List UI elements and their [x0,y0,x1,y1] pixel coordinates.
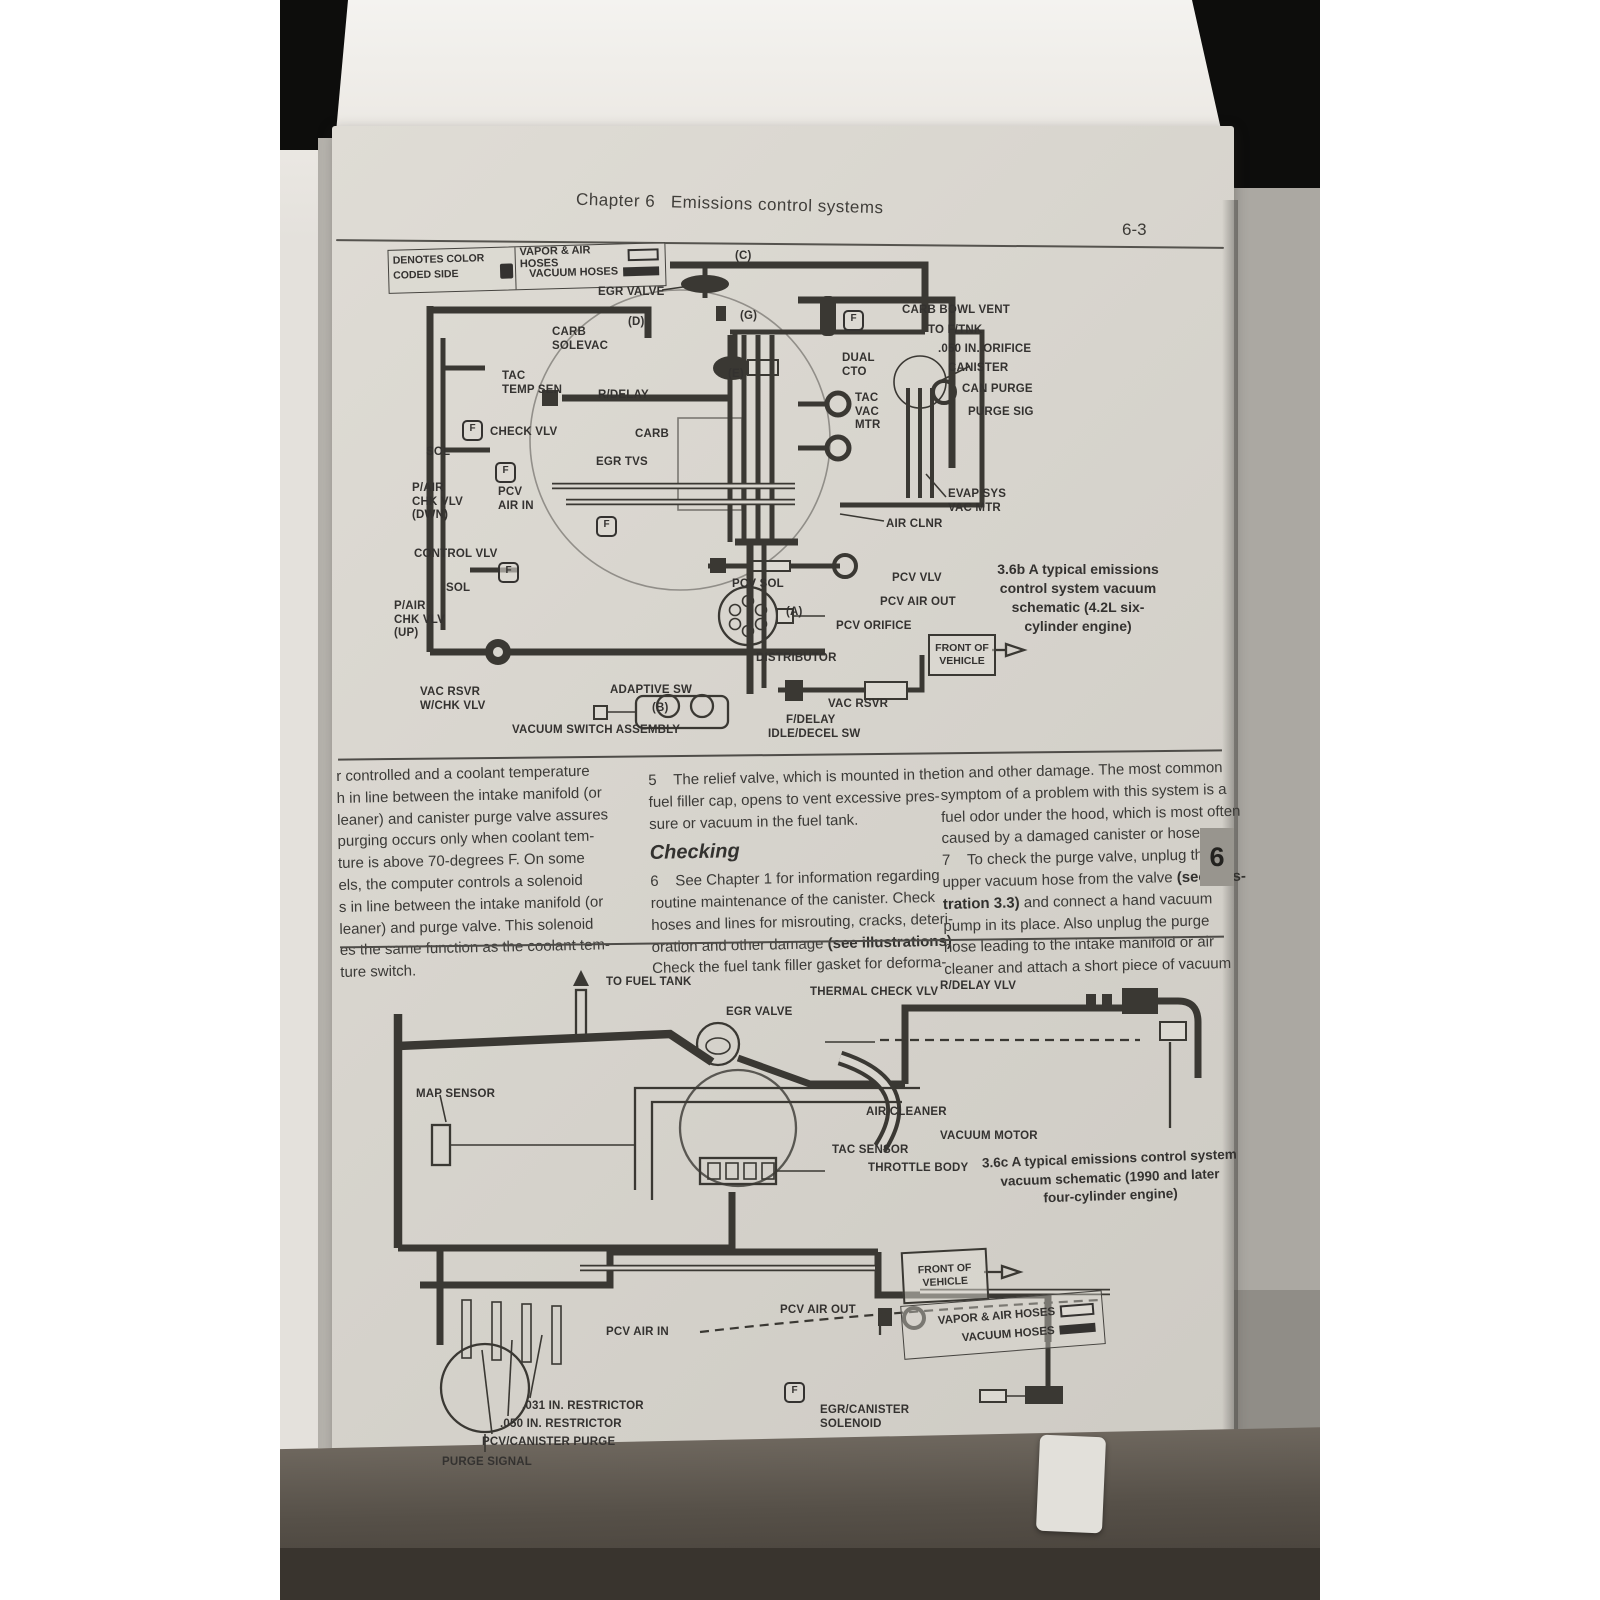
fitting-f-icon: F [596,516,617,537]
diagram-label: PCV VLV [892,572,942,586]
diagram-label: PCV ORIFICE [836,620,912,634]
diagram-label: IDLE/DECEL SW [768,728,860,742]
diagram-label: P/AIR CHK VLV (DWN) [412,482,463,523]
diagram-label: SOL [446,582,470,596]
diagram-label: TO F/TNK [928,324,982,338]
chapter-tab: 6 [1200,828,1234,886]
book-photo: Chapter 6 Emissions control systems 6-3 [280,0,1320,1600]
legend-color-coded-cell: DENOTES COLOR CODED SIDE [388,247,516,293]
diagram-label: THROTTLE BODY [868,1162,968,1176]
photo-of-manual-page: { "header": { "chapter_title": "Chapter … [0,0,1600,1600]
diagram-label: VAC RSVR [828,698,888,712]
diagram-label: PURGE SIGNAL [442,1456,532,1470]
diagram-label: VACUUM SWITCH ASSEMBLY [512,724,680,738]
figure-caption-3-6b: 3.6b A typical emissions control system … [952,560,1204,636]
front-of-vehicle-box-2: FRONT OF VEHICLE [901,1248,990,1304]
text-column-2: 5 The relief valve, which is mounted in … [648,764,946,980]
diagram-label: VACUUM MOTOR [940,1130,1038,1144]
diagram-label: PCV AIR OUT [880,596,956,610]
diagram-label: MAP SENSOR [416,1088,495,1102]
diagram-label: AIR CLNR [886,518,943,532]
diagram-label: (C) [735,250,752,264]
paragraph-5: 5 The relief valve, which is mounted in … [648,764,943,836]
fitting-f-icon: F [498,562,519,583]
text-divider-top [338,749,1222,760]
plug-icon [500,263,513,278]
diagram-label: DUAL CTO [842,352,875,379]
diagram-label: PURGE SIG [968,406,1034,420]
vacuum-hoses-label: VACUUM HOSES [961,1324,1055,1343]
legend-denotes-line2: CODED SIDE [393,268,459,282]
diagram-label: R/DELAY [598,389,649,403]
vacuum-hoses-label: VACUUM HOSES [529,265,618,279]
diagram-label: PCV SOL [732,578,784,592]
diagram-label: EVAP SYS VAC MTR [948,488,1006,515]
diagram-label: (D) [628,316,645,330]
diagram-label: PCV AIR IN [498,486,534,513]
diagram-label: CARB SOLEVAC [552,326,608,353]
text-column-1: r controlled and a coolant temperatureh … [336,759,652,983]
diagram-label: THERMAL CHECK VLV [810,986,938,1000]
text-column-3: tion and other damage. The most commonsy… [940,757,1239,981]
diagram-label: PCV AIR OUT [780,1304,856,1318]
diagram-label: TAC SENSOR [832,1144,909,1158]
diagram-label: EGR VALVE [726,1006,793,1020]
vapor-hose-swatch-icon [627,248,659,261]
vacuum-hose-swatch-icon [623,266,659,276]
diagram-label: ADAPTIVE SW [610,684,692,698]
diagram-label: CARB BOWL VENT [902,304,1010,318]
diagram-label: CHECK VLV [490,426,557,440]
legend-denotes-line1: DENOTES COLOR [393,252,485,267]
page-content: Chapter 6 Emissions control systems 6-3 [280,0,1320,1600]
page-number: 6-3 [1122,220,1147,240]
diagram-label: CONTROL VLV [414,548,498,562]
diagram-label: EGR VALVE [598,286,665,300]
diagram-label: (G) [740,310,757,324]
diagram-label: (A) [786,606,803,620]
fitting-f-icon: F [462,420,483,441]
hose-legend-top: DENOTES COLOR CODED SIDE VAPOR & AIR HOS… [387,242,666,294]
diagram-label: (B) [652,702,669,716]
diagram-label: AIR CLEANER [866,1106,947,1120]
fitting-f-icon: F [843,310,864,331]
chapter-header: Chapter 6 Emissions control systems [576,190,884,219]
diagram-label: PCV AIR IN [606,1326,669,1340]
diagram-label: P/AIR CHK VLV (UP) [394,600,445,641]
diagram-label: .050 IN. RESTRICTOR [500,1418,622,1432]
vacuum-hose-swatch-icon [1059,1323,1096,1335]
diagram-label: .031 IN. RESTRICTOR [522,1400,644,1414]
fitting-f-icon: F [495,462,516,483]
diagram-label: PCV/CANISTER PURGE [482,1436,615,1450]
checking-heading: Checking [650,837,944,865]
diagram-label: TAC VAC MTR [855,392,881,433]
diagram-label: CAN PURGE [962,383,1033,397]
fitting-f-icon: F [784,1382,805,1403]
diagram-label: R/DELAY VLV [940,980,1016,994]
diagram-label: (E) [728,368,744,382]
diagram-label: EGR TVS [596,456,648,470]
diagram-label: DISTRIBUTOR [756,652,837,666]
figure-caption-3-6c: 3.6c A typical emissions control system … [967,1145,1253,1210]
legend-hose-cell: VAPOR & AIR HOSES VACUUM HOSES [515,243,665,289]
paragraph-6: 6 See Chapter 1 for information regardin… [650,865,946,980]
diagram-label: VAC RSVR W/CHK VLV [420,686,485,713]
front-of-vehicle-box-1: FRONT OF VEHICLE [928,634,996,676]
diagram-label: SOL [426,446,450,460]
diagram-label: CANISTER [948,362,1008,376]
diagram-label: F/DELAY [786,714,836,728]
diagram-label: TAC TEMP SEN [502,370,562,397]
diagram-label: .050 IN. ORIFICE [938,343,1031,357]
diagram-label: CARB [635,428,669,442]
diagram-label: EGR/CANISTER SOLENOID [820,1404,909,1431]
vapor-hose-swatch-icon [1060,1302,1095,1317]
